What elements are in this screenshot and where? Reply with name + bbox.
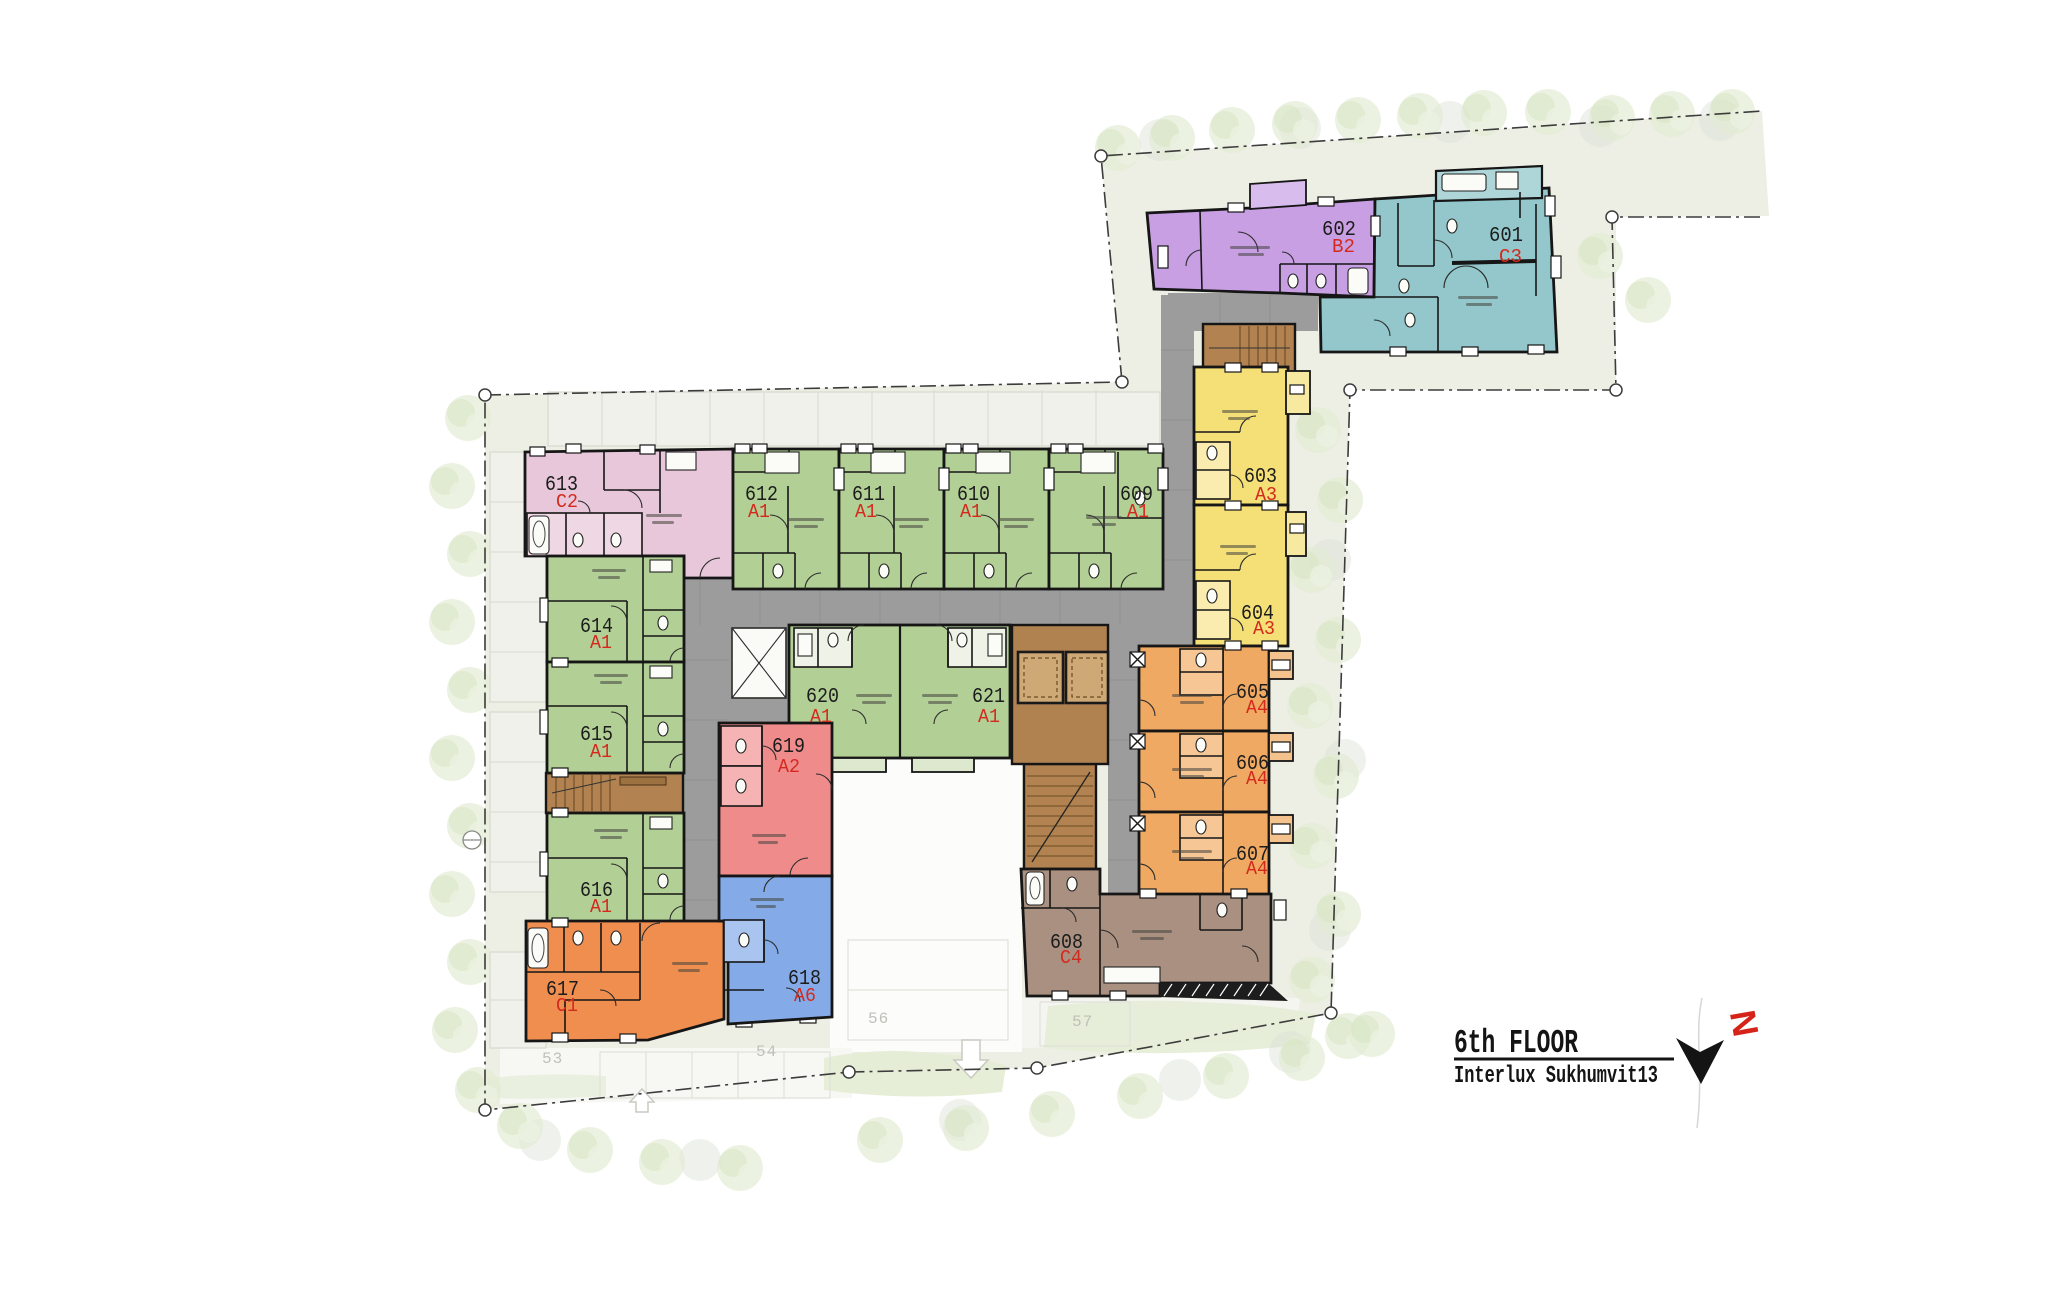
svg-text:C3: C3: [1499, 246, 1522, 268]
svg-text:C1: C1: [556, 995, 578, 1017]
svg-text:A4: A4: [1246, 768, 1268, 790]
svg-text:53: 53: [542, 1050, 563, 1068]
svg-text:56: 56: [868, 1010, 889, 1028]
svg-text:A1: A1: [810, 706, 832, 728]
svg-text:A3: A3: [1255, 484, 1277, 506]
svg-text:A4: A4: [1246, 858, 1268, 880]
svg-text:6th FLOOR: 6th FLOOR: [1454, 1025, 1578, 1062]
svg-text:C2: C2: [556, 491, 578, 513]
svg-text:A2: A2: [778, 756, 800, 778]
svg-text:A3: A3: [1253, 618, 1275, 640]
svg-text:A1: A1: [855, 501, 877, 523]
svg-text:57: 57: [1072, 1013, 1093, 1031]
svg-text:A1: A1: [590, 896, 612, 918]
svg-text:A1: A1: [590, 741, 612, 763]
svg-text:A1: A1: [590, 632, 612, 654]
svg-text:A1: A1: [1127, 501, 1149, 523]
svg-text:Interlux Sukhumvit13: Interlux Sukhumvit13: [1454, 1063, 1658, 1090]
svg-text:54: 54: [756, 1043, 777, 1061]
svg-text:A4: A4: [1246, 697, 1268, 719]
svg-text:A1: A1: [978, 706, 1000, 728]
svg-text:A1: A1: [960, 501, 982, 523]
svg-text:C4: C4: [1060, 947, 1082, 969]
svg-text:B2: B2: [1332, 236, 1355, 258]
svg-text:A1: A1: [748, 501, 770, 523]
svg-text:601: 601: [1489, 225, 1523, 248]
svg-text:A6: A6: [794, 985, 816, 1007]
